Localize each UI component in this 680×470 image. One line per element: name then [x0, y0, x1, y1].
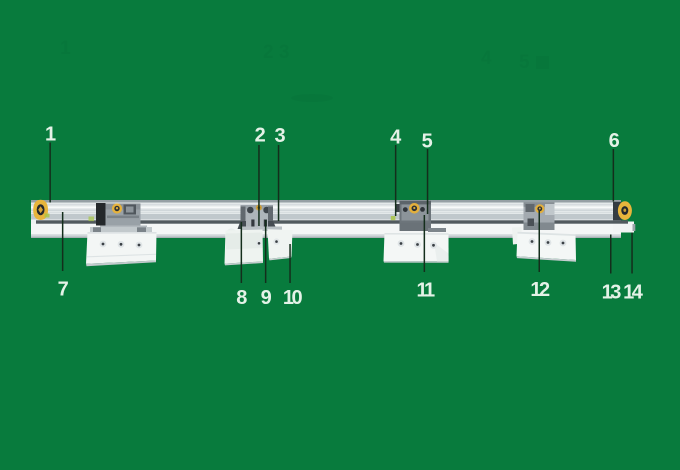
svg-text:11: 11 — [417, 280, 436, 302]
svg-text:4: 4 — [481, 48, 492, 69]
svg-text:5: 5 — [422, 131, 433, 153]
svg-text:2 3: 2 3 — [263, 42, 289, 63]
svg-text:6: 6 — [609, 130, 620, 152]
svg-text:13: 13 — [602, 282, 622, 304]
svg-text:4: 4 — [390, 127, 402, 149]
svg-text:8: 8 — [236, 287, 247, 309]
svg-text:1: 1 — [45, 124, 56, 146]
svg-text:5: 5 — [519, 52, 530, 73]
svg-text:2: 2 — [255, 125, 266, 147]
svg-text:1: 1 — [60, 38, 71, 59]
svg-text:7: 7 — [58, 279, 69, 301]
svg-text:3: 3 — [274, 125, 285, 147]
svg-text:9: 9 — [261, 287, 272, 309]
svg-text:10: 10 — [283, 287, 303, 309]
svg-text:12: 12 — [530, 279, 550, 301]
